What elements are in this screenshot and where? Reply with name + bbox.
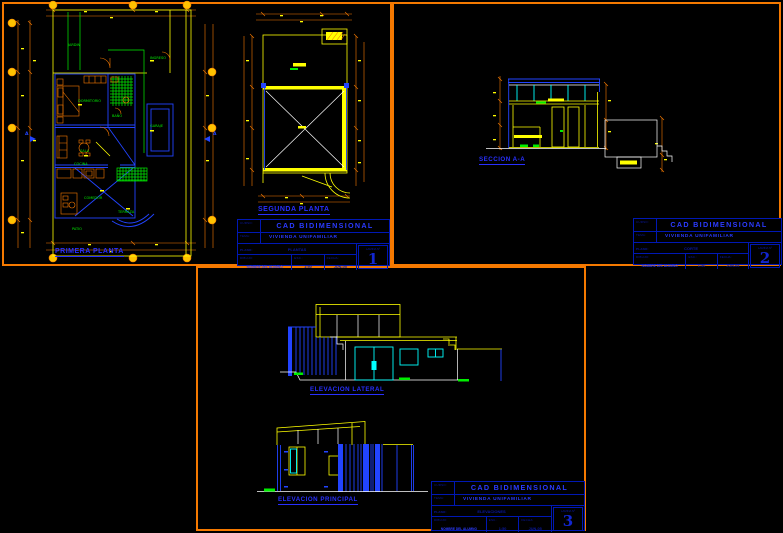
detail-cells: DIBUJO:NOMBRE DEL ALUMNO ESC.:1:50 FECHA… [634,254,748,269]
primera-planta-label: PRIMERA PLANTA [55,248,124,257]
title-block-1: CURSO: CAD BIDIMENSIONAL TEMA: VIVIENDA … [237,219,390,266]
subject-title: VIVIENDA UNIFAMILIAR [455,495,584,505]
course-row: CURSO: CAD BIDIMENSIONAL [238,220,389,233]
subject-title: VIVIENDA UNIFAMILIAR [261,233,389,243]
sheet-number: 1 [368,251,378,268]
primera-planta-drawing: A A JARDIN INGRESO DORMITORIO BAÑO GARAJ… [8,1,217,262]
course-label-cell: CURSO: [238,220,261,232]
plano-cell: PLANO:ELEVACIONES [432,506,551,517]
dibujo-value: NOMBRE DEL ALUMNO [238,265,291,269]
grid-bubbles [8,1,216,262]
fecha-value: JUN-05 [519,527,551,531]
walls [261,29,349,173]
escala-label: ESC.: [294,256,303,260]
course-label: CURSO: [240,221,253,225]
roof-band [277,422,365,446]
segunda-planta-label: SEGUNDA PLANTA [258,206,330,215]
section-marker-a-right: A [213,131,217,137]
subject-row: TEMA: VIVIENDA UNIFAMILIAR [432,495,584,506]
elevacion-lateral-drawing [280,305,502,382]
dibujo-label: DIBUJO: [240,256,253,260]
right-annex [457,349,502,381]
titleblock-bottom: PLANO:CORTE DIBUJO:NOMBRE DEL ALUMNO ESC… [634,243,781,269]
escala-value: 1:50 [487,527,519,531]
room-label: COMEDOR [84,196,103,200]
siding-section [338,444,382,492]
bathroom-tile-hatch [110,76,133,106]
subject-label: TEMA: [636,233,646,237]
fecha-value: JUN-05 [718,264,748,268]
curved-stair [263,173,350,198]
course-label: CURSO: [636,220,649,224]
segunda-planta-drawing [244,12,364,204]
lamina-box: LAMINA Nº 3 [551,506,584,532]
room-label: TERRAZA [117,210,135,214]
lamina-inner: LAMINA Nº 3 [553,507,583,531]
room-label: DORMITORIO [78,99,101,103]
plano-cell: PLANO:CORTE [634,243,748,254]
lamina-box: LAMINA Nº 2 [748,243,781,269]
dibujo-cell: DIBUJO:NOMBRE DEL ALUMNO [238,255,292,270]
section-structure [486,79,606,149]
left-wall [278,445,340,491]
clerestory-band [316,305,400,338]
right-section [383,445,414,492]
escala-label: ESC.: [688,255,697,259]
elevacion-principal-label: ELEVACION PRINCIPAL [278,497,358,505]
escala-value: 1:50 [292,265,323,269]
fecha-cell: FECHA:JUN-05 [325,255,356,270]
course-label-cell: CURSO: [634,219,657,231]
subject-title: VIVIENDA UNIFAMILIAR [657,232,781,242]
elevacion-principal-drawing [257,422,428,493]
section-marker-a-left: A [25,131,29,137]
section-cut-markers: A A [25,131,217,142]
titleblock-left: PLANO:PLANTAS DIBUJO:NOMBRE DEL ALUMNO E… [238,244,356,270]
sheet-number: 3 [563,513,573,530]
course-row: CURSO: CAD BIDIMENSIONAL [432,482,584,495]
subject-label-cell: TEMA: [238,233,261,243]
siding-block [288,327,343,376]
plano-value: CORTE [684,246,698,251]
course-row: CURSO: CAD BIDIMENSIONAL [634,219,781,232]
room-label: JARDIN [67,43,81,47]
dibujo-label: DIBUJO: [636,255,649,259]
subject-row: TEMA: VIVIENDA UNIFAMILIAR [238,233,389,244]
room-label: SALA [80,149,90,153]
room-label: INGRESO [150,56,166,60]
cad-workspace: A A JARDIN INGRESO DORMITORIO BAÑO GARAJ… [0,0,783,533]
subject-label: TEMA: [434,496,444,500]
escala-cell: ESC.:1:50 [686,254,717,269]
subject-row: TEMA: VIVIENDA UNIFAMILIAR [634,232,781,243]
lamina-inner: LAMINA Nº 1 [358,245,388,269]
lamina-inner: LAMINA Nº 2 [750,244,780,268]
room-label: PATIO [72,227,82,231]
lamina-box: LAMINA Nº 1 [356,244,389,270]
title-block-3: CURSO: CAD BIDIMENSIONAL TEMA: VIVIENDA … [431,481,585,531]
plano-value: PLANTAS [288,247,307,252]
title-block-2: CURSO: CAD BIDIMENSIONAL TEMA: VIVIENDA … [633,218,782,265]
dimension-lines [16,8,215,250]
escala-label: ESC.: [489,518,498,522]
fecha-cell: FECHA:JUN-05 [519,517,551,532]
course-title: CAD BIDIMENSIONAL [261,220,389,232]
fecha-label: FECHA: [521,518,533,522]
titleblock-left: PLANO:CORTE DIBUJO:NOMBRE DEL ALUMNO ESC… [634,243,748,269]
escala-cell: ESC.:1:50 [487,517,520,532]
course-title: CAD BIDIMENSIONAL [455,482,584,494]
plano-value: ELEVACIONES [477,509,505,514]
dimension-text-marks [21,11,209,252]
detail-cells: DIBUJO:NOMBRE DEL ALUMNO ESC.:1:50 FECHA… [238,255,356,270]
elevacion-lateral-label: ELEVACION LATERAL [310,387,384,395]
dibujo-label: DIBUJO: [434,518,447,522]
openings [355,339,455,380]
plano-cell: PLANO:PLANTAS [238,244,356,255]
detail-cells: DIBUJO:NOMBRE DEL ALUMNO ESC.:1:50 FECHA… [432,517,551,532]
dibujo-cell: DIBUJO:NOMBRE DEL ALUMNO [432,517,487,532]
room-label: COCINA [74,162,88,166]
course-label-cell: CURSO: [432,482,455,494]
seccion-label: SECCION A-A [479,157,525,165]
titleblock-bottom: PLANO:ELEVACIONES DIBUJO:NOMBRE DEL ALUM… [432,506,584,532]
furniture [57,52,170,214]
laundry-tile-hatch [117,168,147,181]
escala-value: 1:50 [686,264,716,268]
subject-label-cell: TEMA: [634,232,657,242]
fecha-label: FECHA: [327,256,339,260]
sheet-number: 2 [760,250,770,267]
room-label: BAÑO [112,113,122,118]
fecha-value: JUN-05 [325,265,356,269]
course-label: CURSO: [434,483,447,487]
dibujo-cell: DIBUJO:NOMBRE DEL ALUMNO [634,254,686,269]
fecha-label: FECHA: [720,255,732,259]
subject-label-cell: TEMA: [432,495,455,505]
dibujo-value: NOMBRE DEL ALUMNO [634,264,685,268]
room-label: GARAJE [150,124,163,128]
course-title: CAD BIDIMENSIONAL [657,219,781,231]
dibujo-value: NOMBRE DEL ALUMNO [432,527,486,531]
escala-cell: ESC.:1:50 [292,255,324,270]
subject-label: TEMA: [240,234,250,238]
titleblock-left: PLANO:ELEVACIONES DIBUJO:NOMBRE DEL ALUM… [432,506,551,532]
titleblock-bottom: PLANO:PLANTAS DIBUJO:NOMBRE DEL ALUMNO E… [238,244,389,270]
fecha-cell: FECHA:JUN-05 [718,254,748,269]
